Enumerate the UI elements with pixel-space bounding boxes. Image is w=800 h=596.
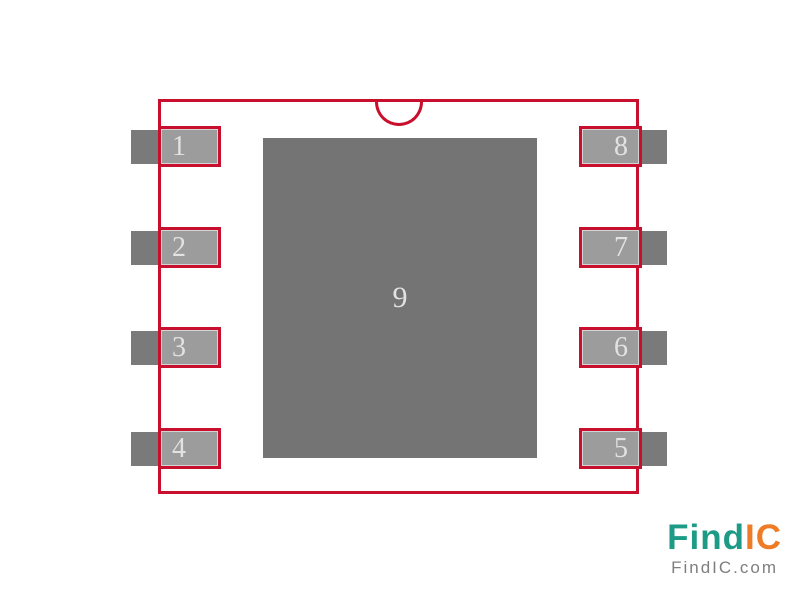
footprint-canvas: 9 1 2 3 4 8 7 6 5 FindIC FindIC.com — [0, 0, 800, 596]
findic-logo-tagline: FindIC.com — [667, 559, 782, 576]
pin-label: 7 — [614, 232, 628, 264]
thermal-pad-9: 9 — [263, 138, 537, 458]
logo-text-find: Find — [667, 518, 745, 557]
pin-label: 8 — [614, 131, 628, 163]
pin-label: 3 — [172, 332, 186, 364]
findic-logo[interactable]: FindIC FindIC.com — [667, 520, 782, 576]
lead-stub-pin-5 — [640, 432, 667, 466]
pin-pad-4: 4 — [158, 428, 221, 469]
pin-label: 6 — [614, 332, 628, 364]
lead-stub-pin-7 — [640, 231, 667, 265]
pin-pad-1: 1 — [158, 126, 221, 167]
lead-stub-pin-3 — [131, 331, 158, 365]
pin-pad-2: 2 — [158, 227, 221, 268]
pin-label: 4 — [172, 433, 186, 465]
logo-text-ic: IC — [745, 518, 782, 557]
thermal-pad-label: 9 — [393, 283, 408, 313]
pin-label: 5 — [614, 433, 628, 465]
lead-stub-pin-4 — [131, 432, 158, 466]
lead-stub-pin-6 — [640, 331, 667, 365]
findic-logo-wordmark: FindIC — [667, 520, 782, 555]
pin-pad-6: 6 — [579, 327, 642, 368]
pin-pad-3: 3 — [158, 327, 221, 368]
pin-pad-7: 7 — [579, 227, 642, 268]
lead-stub-pin-8 — [640, 130, 667, 164]
pin-label: 2 — [172, 232, 186, 264]
pin-pad-5: 5 — [579, 428, 642, 469]
pin-pad-8: 8 — [579, 126, 642, 167]
lead-stub-pin-2 — [131, 231, 158, 265]
lead-stub-pin-1 — [131, 130, 158, 164]
pin-label: 1 — [172, 131, 186, 163]
